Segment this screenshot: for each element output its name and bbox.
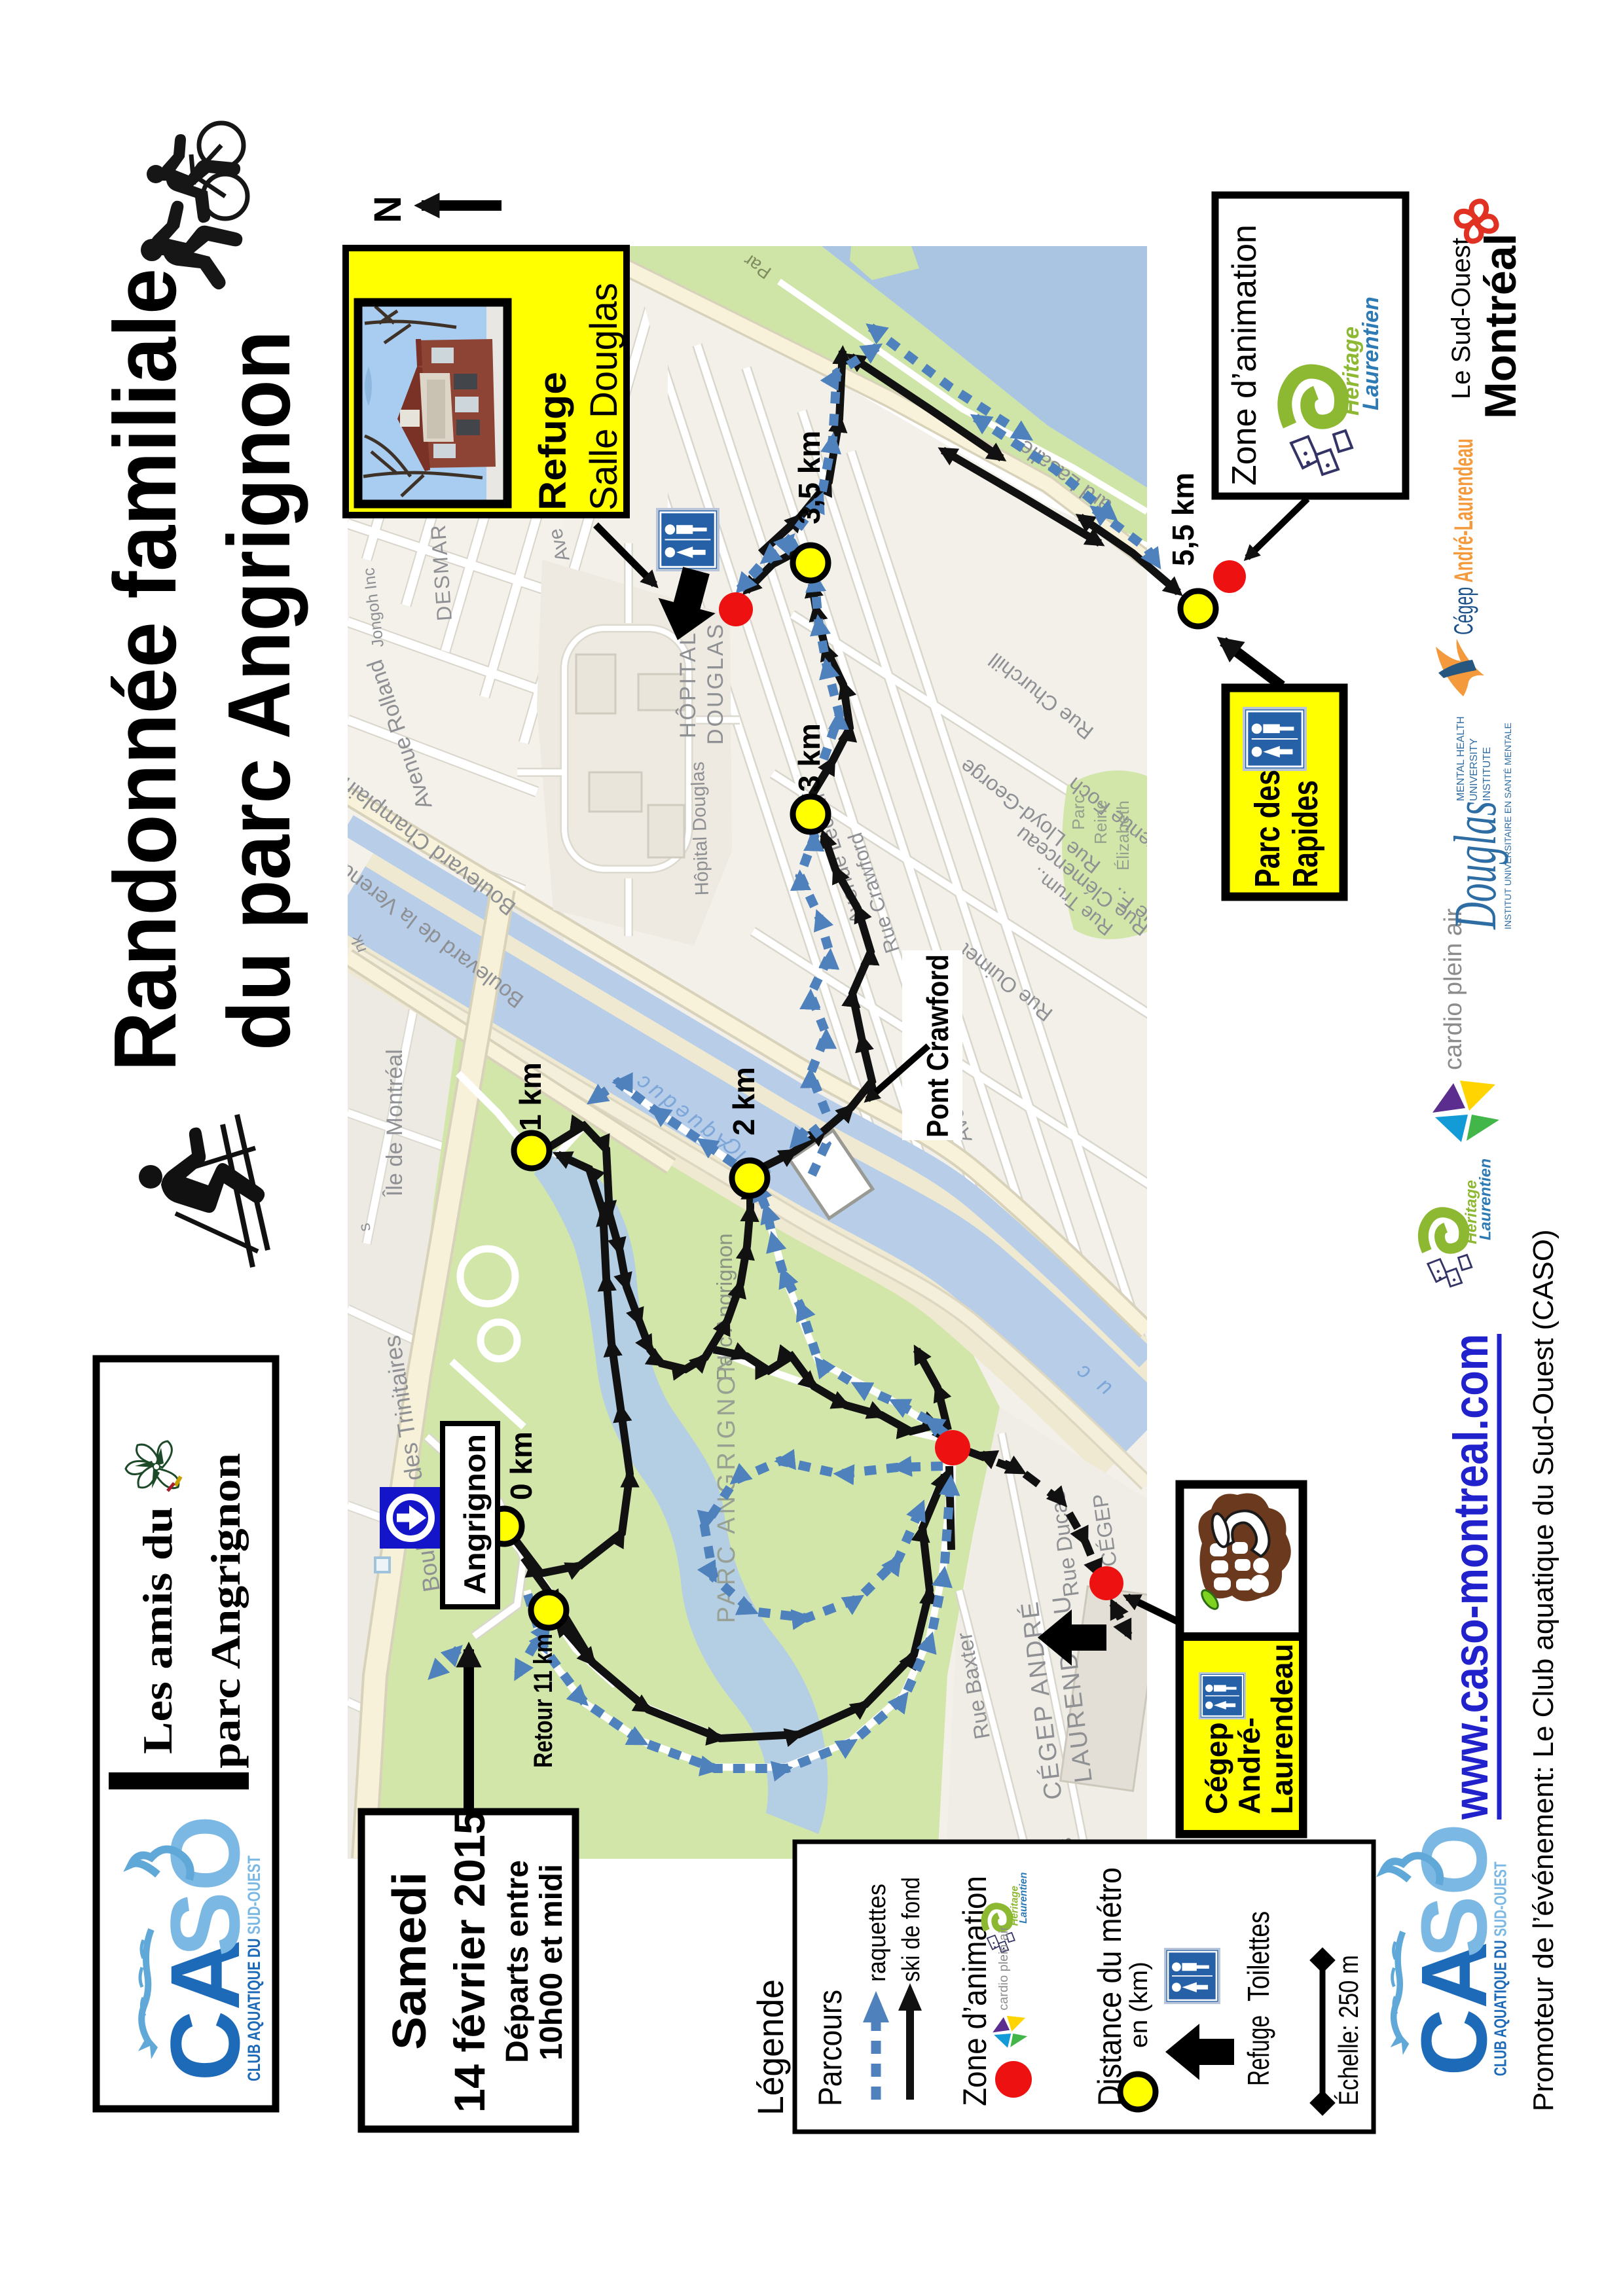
svg-text:Samedi: Samedi <box>384 1872 436 2050</box>
svg-text:parc Angrignon: parc Angrignon <box>202 1453 249 1768</box>
svg-text:Cégep André-Laurendeau: Cégep André-Laurendeau <box>1450 439 1478 635</box>
svg-text:Cégep: Cégep <box>1199 1722 1233 1814</box>
svg-text:0 km: 0 km <box>504 1431 538 1500</box>
svg-text:Parc: Parc <box>1068 795 1088 830</box>
svg-text:Les amis du: Les amis du <box>134 1507 181 1754</box>
svg-text:Échelle: 250 m: Échelle: 250 m <box>1333 1955 1364 2106</box>
svg-text:3,5 km: 3,5 km <box>792 431 826 524</box>
svg-text:Distance du métro: Distance du métro <box>1091 1867 1128 2106</box>
svg-text:Toilettes: Toilettes <box>1241 1911 1275 2001</box>
svg-text:CLUB AQUATIQUE DU SUD-OUEST: CLUB AQUATIQUE DU SUD-OUEST <box>244 1856 264 2081</box>
svg-text:Zone d’animation: Zone d’animation <box>1226 224 1264 486</box>
svg-text:14 février 2015: 14 février 2015 <box>445 1810 494 2113</box>
svg-text:Le Sud-Ouest: Le Sud-Ouest <box>1447 238 1476 399</box>
svg-text:Retour 11 km: Retour 11 km <box>529 1634 558 1768</box>
svg-text:5,5 km: 5,5 km <box>1166 473 1200 566</box>
svg-text:Laurendeau: Laurendeau <box>1265 1643 1299 1814</box>
svg-text:Départs entre: Départs entre <box>500 1860 535 2063</box>
svg-text:INSTITUTE: INSTITUTE <box>1482 747 1493 801</box>
svg-text:Salle Douglas: Salle Douglas <box>583 283 625 511</box>
svg-text:Randonnée familiale: Randonnée familiale <box>96 268 194 1071</box>
svg-text:Élizabeth: Élizabeth <box>1113 800 1133 870</box>
svg-text:ski de fond: ski de fond <box>898 1877 925 1982</box>
svg-text:Parc des: Parc des <box>1248 770 1287 888</box>
svg-text:Promoteur de l’événement: Le C: Promoteur de l’événement: Le Club aquati… <box>1527 1229 1559 2111</box>
svg-text:HÔPITAL: HÔPITAL <box>676 631 701 738</box>
svg-text:en (km): en (km) <box>1125 1962 1153 2048</box>
svg-text:CA: CA <box>150 1939 260 2081</box>
svg-text:Angrignon: Angrignon <box>458 1434 492 1594</box>
svg-text:Laurentien: Laurentien <box>1359 296 1383 410</box>
svg-text:Douglas: Douglas <box>1442 801 1508 930</box>
svg-text:SO: SO <box>150 1815 260 1957</box>
svg-text:N: N <box>367 196 409 223</box>
svg-text:www.caso-montreal.com: www.caso-montreal.com <box>1444 1334 1498 1820</box>
svg-text:3 km: 3 km <box>792 723 826 792</box>
svg-text:Refuge: Refuge <box>532 372 574 511</box>
svg-text:André-: André- <box>1232 1717 1266 1814</box>
svg-text:Montréal: Montréal <box>1476 234 1525 419</box>
svg-text:Refuge: Refuge <box>1241 2015 1275 2086</box>
svg-text:Parcours: Parcours <box>812 1990 848 2106</box>
svg-text:Légende: Légende <box>750 1979 791 2115</box>
svg-text:10h00 et midi: 10h00 et midi <box>534 1864 569 2060</box>
svg-text:Île de Montréal: Île de Montréal <box>382 1049 407 1197</box>
svg-text:du parc Angrignon: du parc Angrignon <box>210 331 308 1050</box>
svg-text:MENTAL HEALTH: MENTAL HEALTH <box>1455 717 1467 802</box>
svg-text:1 km: 1 km <box>513 1062 547 1131</box>
svg-text:Reine: Reine <box>1091 800 1110 844</box>
svg-text:2 km: 2 km <box>727 1067 761 1136</box>
svg-text:DOUGLAS: DOUGLAS <box>703 622 728 745</box>
svg-text:INSTITUT UNIVERSITAIRE EN SANT: INSTITUT UNIVERSITAIRE EN SANTÉ MENTALE <box>1503 723 1513 929</box>
svg-text:Rapides: Rapides <box>1286 780 1325 888</box>
svg-text:cardio plein air: cardio plein air <box>996 1926 1011 2011</box>
svg-text:raquettes: raquettes <box>864 1884 891 1982</box>
svg-text:UNIVERSITY: UNIVERSITY <box>1468 738 1480 801</box>
